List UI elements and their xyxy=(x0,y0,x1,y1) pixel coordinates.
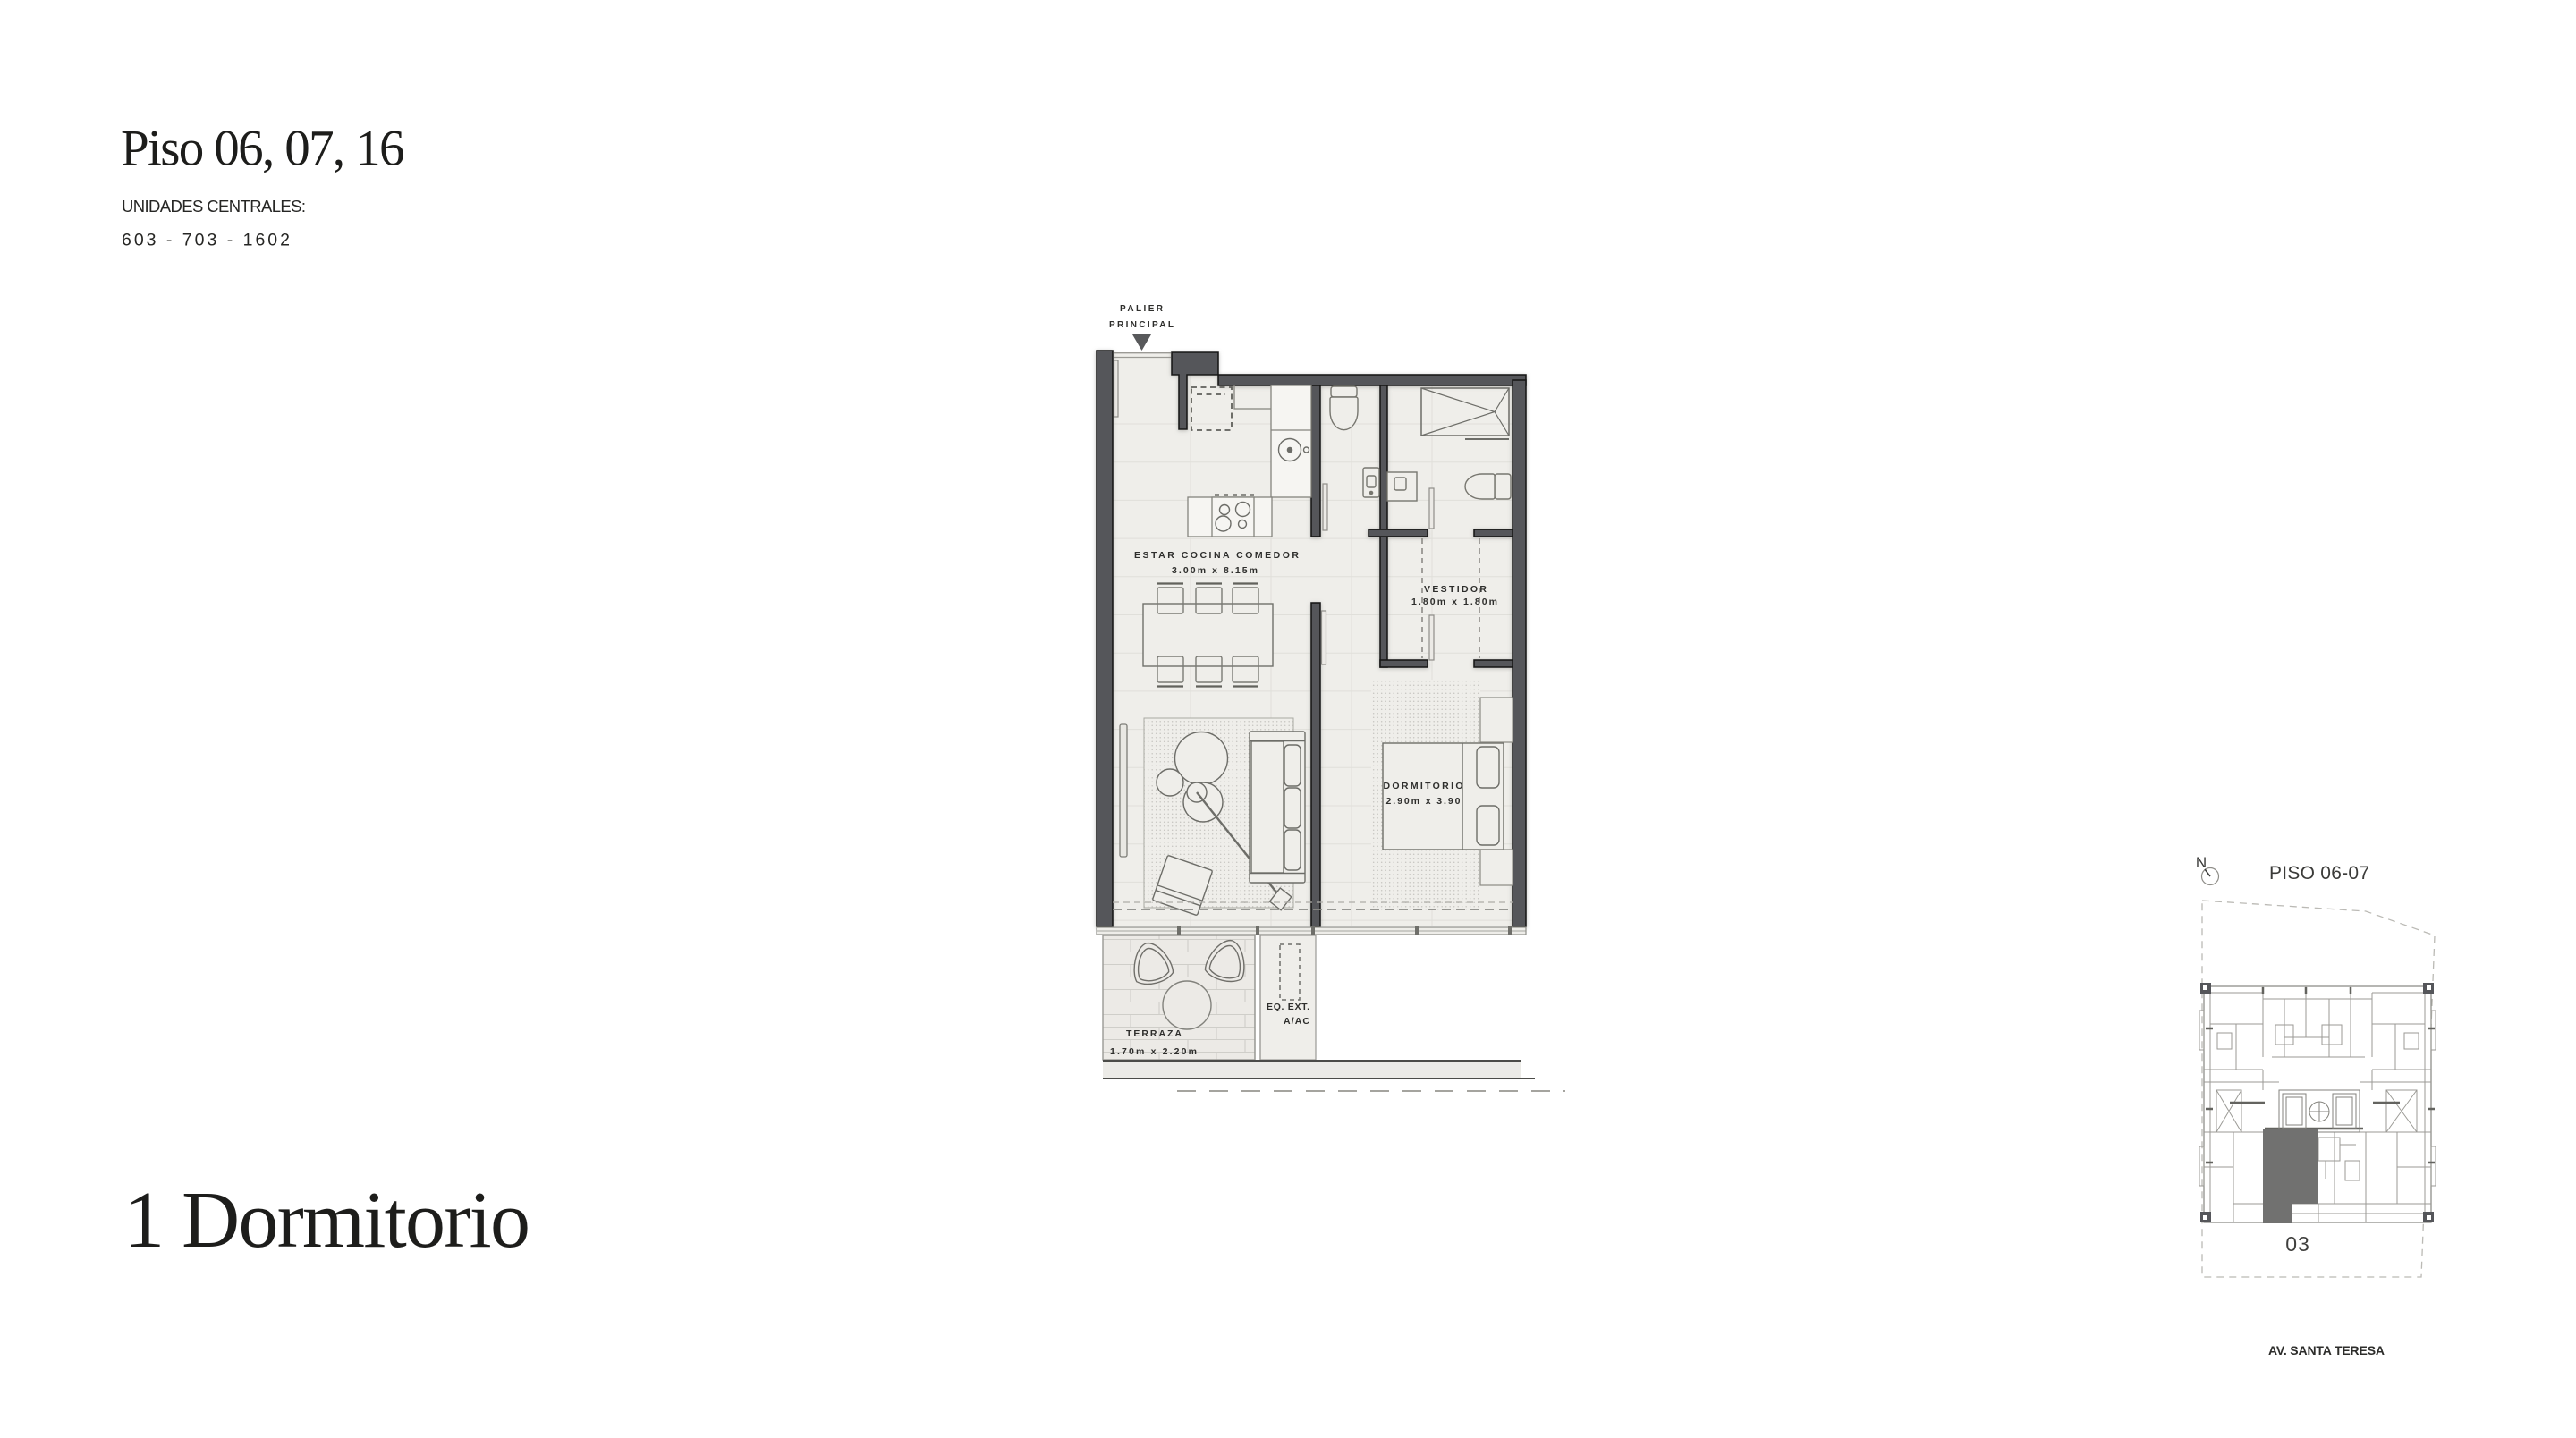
svg-text:UNIDADES CENTRALES:: UNIDADES CENTRALES: xyxy=(122,197,306,216)
svg-text:PISO 06-07: PISO 06-07 xyxy=(2269,863,2369,884)
svg-text:1.80m x 1.80m: 1.80m x 1.80m xyxy=(1411,596,1497,607)
svg-text:ESTAR COCINA COMEDOR: ESTAR COCINA COMEDOR xyxy=(1134,550,1299,561)
svg-text:PRINCIPAL: PRINCIPAL xyxy=(1109,320,1174,330)
svg-text:N: N xyxy=(2196,854,2207,871)
svg-text:03: 03 xyxy=(2285,1232,2310,1256)
svg-text:AV. SANTA TERESA: AV. SANTA TERESA xyxy=(2268,1343,2385,1358)
svg-text:1 Dormitorio: 1 Dormitorio xyxy=(124,1176,530,1265)
svg-text:1.70m x 2.20m: 1.70m x 2.20m xyxy=(1110,1046,1197,1057)
svg-text:A/AC: A/AC xyxy=(1284,1016,1309,1027)
svg-text:3.00m x 8.15m: 3.00m x 8.15m xyxy=(1172,565,1258,576)
svg-text:2.90m x 3.90: 2.90m x 3.90 xyxy=(1386,796,1461,807)
svg-text:Piso 06, 07, 16: Piso 06, 07, 16 xyxy=(121,121,405,177)
svg-text:EQ. EXT.: EQ. EXT. xyxy=(1267,1002,1309,1012)
